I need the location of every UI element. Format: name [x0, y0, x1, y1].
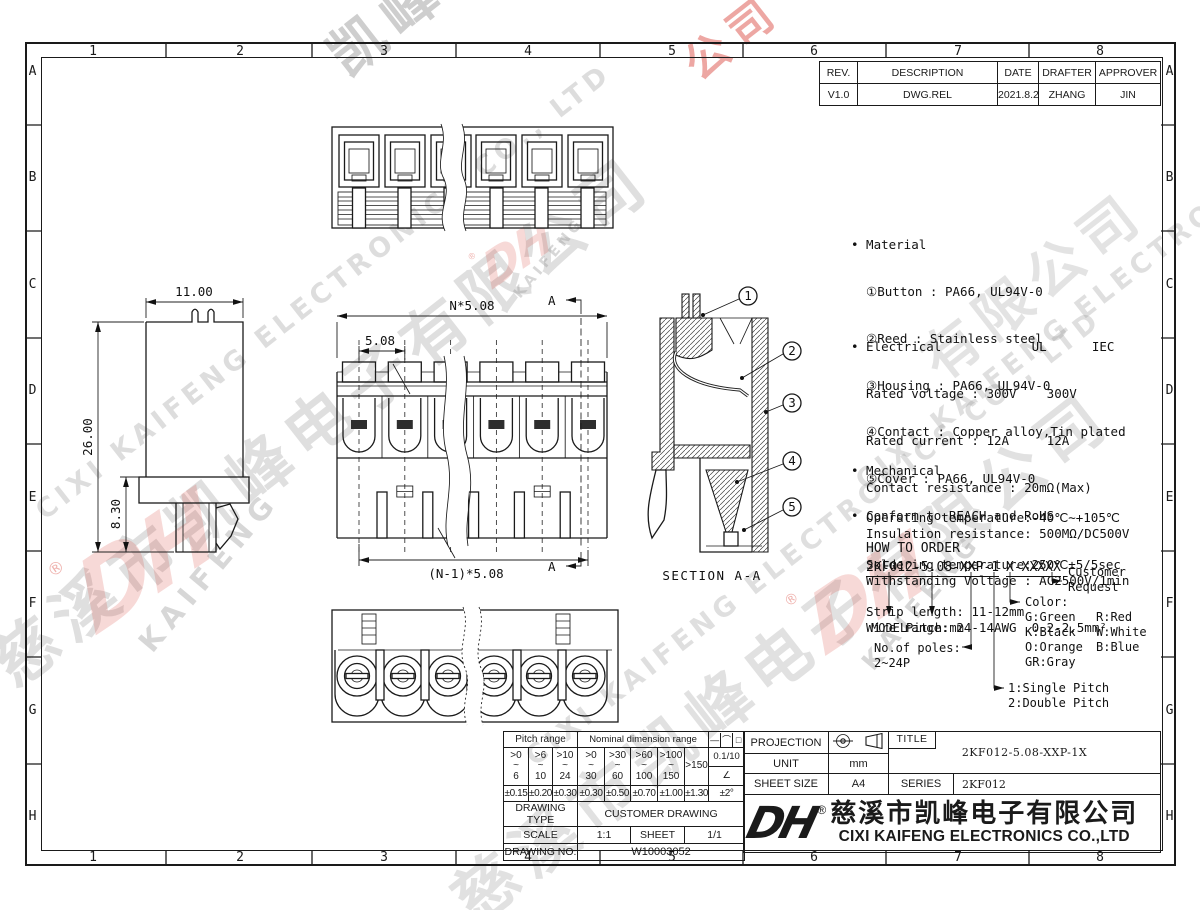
order-code-suffix-wrap: X-XXXXX [1006, 558, 1061, 576]
zone-row-label: D [1162, 383, 1177, 398]
flatness-angle-cell: 0.1/10 ∠ [709, 748, 745, 786]
zone-row-label: H [25, 809, 40, 824]
description-header: DESCRIPTION [858, 62, 998, 84]
company-name-cn: 慈溪市凯峰电子有限公司 [830, 801, 1138, 828]
scale-value: 1:1 [578, 827, 631, 844]
range-cell: >0 ~ 30 [578, 748, 605, 786]
order-color-label: Color: [1025, 595, 1068, 609]
drawing-type-label: DRAWING TYPE [504, 802, 578, 827]
unit-label: UNIT [744, 754, 829, 774]
note-line: • Mechanical [851, 463, 1121, 479]
zone-col-label: 1 [85, 44, 101, 59]
zone-row-label: D [25, 383, 40, 398]
color-option: GR:Gray [1025, 655, 1076, 669]
rev-value: V1.0 [820, 84, 858, 106]
angle-icon: ∠ [709, 766, 744, 785]
tolerance-cell: ±0.30 [578, 786, 605, 802]
title-tag: TITLE [889, 732, 936, 749]
range-cell: >0 ~ 6 [504, 748, 529, 786]
range-over-cell: >150 [685, 748, 709, 786]
conform-note: • Conform to REACH and RoHS [851, 508, 1054, 524]
flatness-tolerance: 0.1/10 [709, 748, 744, 766]
company-cell: DH ® 慈溪市凯峰电子有限公司 CIXI KAIFENG ELECTRONIC… [744, 795, 1161, 853]
note-line: • Material [851, 237, 1126, 253]
rev-header: REV. [820, 62, 858, 84]
drawing-no-label: DRAWING NO. [504, 844, 578, 861]
range-cell: >10 ~ 24 [553, 748, 578, 786]
straightness-icon: — [709, 733, 720, 747]
sheet-size-label: SHEET SIZE [744, 774, 829, 795]
revision-header-row: REV. DESCRIPTION DATE DRAFTER APPROVER [820, 62, 1161, 84]
color-option: K:Black [1025, 625, 1076, 639]
date-header: DATE [998, 62, 1039, 84]
tolerance-cell: ±0.30 [553, 786, 578, 802]
projection-symbol-cell [829, 732, 889, 754]
order-code-suffix: X-XXXXX [1006, 560, 1061, 577]
order-single-pitch: 1:Single Pitch [1008, 681, 1109, 695]
zone-row-label: E [25, 490, 40, 505]
tolerance-cell: ±0.15 [504, 786, 529, 802]
color-option: R:Red [1096, 610, 1132, 624]
zone-col-label: 8 [1092, 44, 1108, 59]
color-option: O:Orange [1025, 640, 1083, 654]
note-line: • Electrical UL IEC [851, 339, 1129, 355]
dh-logo: DH [744, 806, 818, 841]
note-line: Strip length: 11-12mm [851, 604, 1121, 620]
zone-row-label: A [1162, 64, 1177, 79]
company-name-en: CIXI KAIFENG ELECTRONICS CO.,LTD [830, 828, 1138, 846]
note-line: Rated voltage : 300V 300V [851, 386, 1129, 402]
range-cell: >60 ~ 100 [631, 748, 658, 786]
drafter-value: ZHANG [1039, 84, 1096, 106]
series-value: 2KF012 [954, 774, 1161, 795]
arc-icon: ⌒ [720, 733, 732, 747]
how-to-order-title: HOW TO ORDER [866, 541, 960, 556]
description-value: DWG.REL [858, 84, 998, 106]
sheet-size-value: A4 [829, 774, 889, 795]
range-cell: >100 ~ 150 [658, 748, 685, 786]
order-code-main: 2KF012-5.08-XXP-1 [866, 560, 999, 577]
approver-value: JIN [1096, 84, 1161, 106]
tolerance-cell: ±1.00 [658, 786, 685, 802]
zone-row-label: C [25, 277, 40, 292]
scale-label: SCALE [504, 827, 578, 844]
approver-header: APPROVER [1096, 62, 1161, 84]
zone-row-label: F [1162, 596, 1177, 611]
zone-col-label: 5 [664, 44, 680, 59]
zone-col-label: 3 [376, 850, 392, 865]
color-option: B:Blue [1096, 640, 1139, 654]
zone-row-label: H [1162, 809, 1177, 824]
revision-table: REV. DESCRIPTION DATE DRAFTER APPROVER V… [819, 61, 1161, 106]
range-cell: >30 ~ 60 [605, 748, 631, 786]
drafter-header: DRAFTER [1039, 62, 1096, 84]
zone-row-label: B [25, 170, 40, 185]
geometry-symbols: — ⌒ □ [709, 732, 745, 748]
third-angle-projection-icon [830, 732, 888, 750]
tolerance-table: Pitch range Nominal dimension range — ⌒ … [503, 731, 745, 861]
drawing-title-cell: TITLE 2KF012-5.08-XXP-1X [889, 732, 1161, 774]
zone-col-label: 6 [806, 44, 822, 59]
zone-row-label: E [1162, 490, 1177, 505]
nominal-range-header: Nominal dimension range [578, 732, 709, 748]
zone-row-label: C [1162, 277, 1177, 292]
order-pitch-label: Pitch:mm [906, 621, 964, 635]
color-option: G:Green [1025, 610, 1076, 624]
tolerance-cell: ±0.20 [529, 786, 553, 802]
order-double-pitch: 2:Double Pitch [1008, 696, 1109, 710]
zone-row-label: F [25, 596, 40, 611]
note-line: ①Button : PA66, UL94V-0 [851, 284, 1126, 300]
zone-row-label: B [1162, 170, 1177, 185]
angle-tolerance-cell: ±2° [709, 786, 745, 802]
tolerance-cell: ±0.70 [631, 786, 658, 802]
zone-col-label: 1 [85, 850, 101, 865]
tolerance-cell: ±0.50 [605, 786, 631, 802]
registered-icon: ® [817, 803, 826, 817]
projection-label: PROJECTION [744, 732, 829, 754]
zone-col-label: 2 [232, 850, 248, 865]
zone-row-label: G [25, 703, 40, 718]
drawing-no-value: W10003052 [578, 844, 745, 861]
title-block: PROJECTION TITLE 2KF012-5.08-XXP-1X UNIT… [743, 731, 1161, 853]
engineering-drawing-page: 慈溪市凯峰电子有限公司 CIXI KAIFENG ELECTRONICS CO.… [0, 0, 1200, 910]
drawing-type-value: CUSTOMER DRAWING [578, 802, 745, 827]
zone-row-label: G [1162, 703, 1177, 718]
zone-row-label: A [25, 64, 40, 79]
pitch-range-header: Pitch range [504, 732, 578, 748]
series-label: SERIES [889, 774, 954, 795]
unit-value: mm [829, 754, 889, 774]
range-cell: >6 ~ 10 [529, 748, 553, 786]
order-poles-range: 2~24P [874, 656, 910, 670]
date-value: 2021.8.25 [998, 84, 1039, 106]
zone-col-label: 4 [520, 44, 536, 59]
revision-value-row: V1.0 DWG.REL 2021.8.25 ZHANG JIN [820, 84, 1161, 106]
order-customer-line2: Request [1068, 580, 1119, 594]
order-customer-line1: Customer [1068, 565, 1126, 579]
zone-col-label: 7 [950, 44, 966, 59]
order-model-label: MODEL [871, 621, 907, 635]
sheet-value: 1/1 [685, 827, 745, 844]
tolerance-cell: ±1.30 [685, 786, 709, 802]
sheet-label: SHEET [631, 827, 685, 844]
color-option: W:White [1096, 625, 1147, 639]
order-poles-label: No.of poles: [874, 641, 961, 655]
order-code: 2KF012-5.08-XXP-1 [866, 558, 999, 576]
zone-col-label: 3 [376, 44, 392, 59]
zone-col-label: 2 [232, 44, 248, 59]
